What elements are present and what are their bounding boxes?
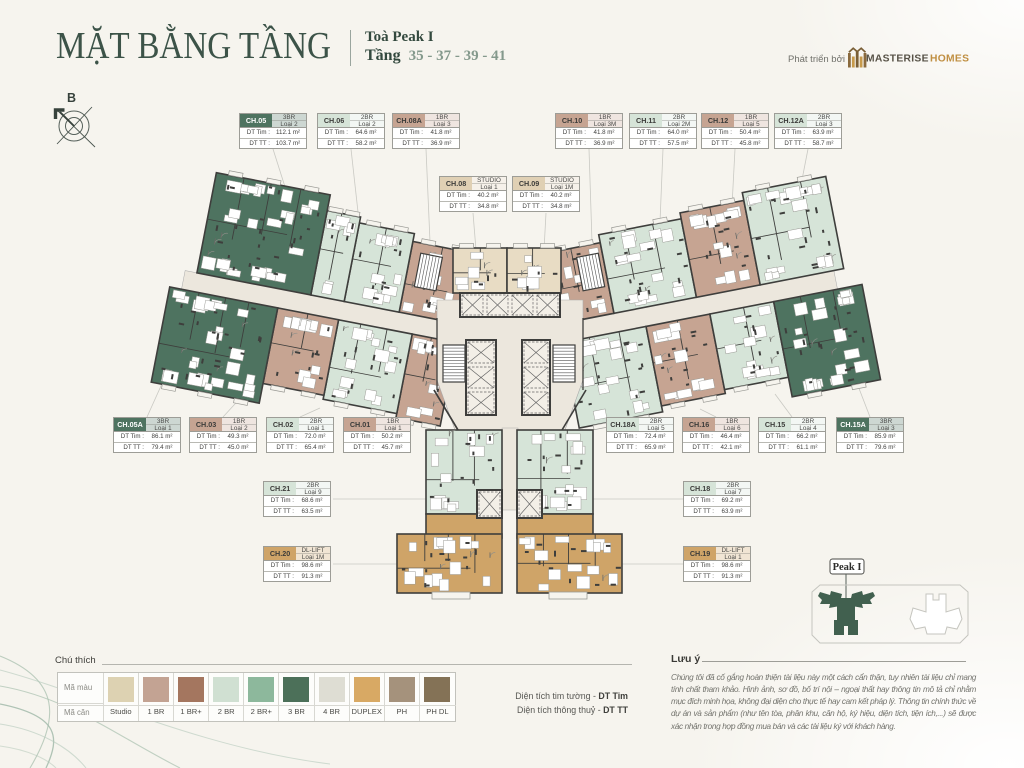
- svg-text:Peak I: Peak I: [833, 562, 862, 573]
